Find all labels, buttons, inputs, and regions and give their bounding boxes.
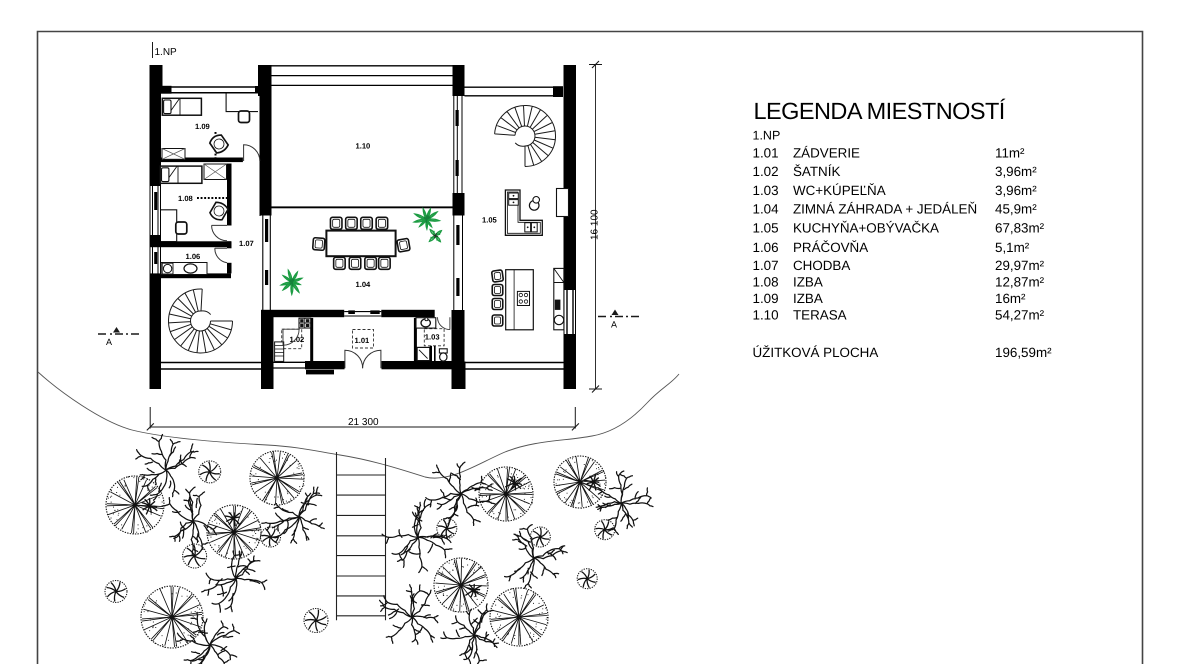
svg-text:ŠATNÍK: ŠATNÍK xyxy=(793,164,840,179)
svg-text:54,27m²: 54,27m² xyxy=(995,308,1045,323)
svg-text:12,87m²: 12,87m² xyxy=(995,275,1045,290)
svg-text:1.04: 1.04 xyxy=(753,202,780,217)
svg-text:1.03: 1.03 xyxy=(753,183,779,198)
svg-text:21 300: 21 300 xyxy=(348,417,379,428)
svg-text:1.05: 1.05 xyxy=(753,221,779,236)
svg-text:3,96m²: 3,96m² xyxy=(995,164,1037,179)
svg-text:ZIMNÁ ZÁHRADA + JEDÁLEŇ: ZIMNÁ ZÁHRADA + JEDÁLEŇ xyxy=(793,202,977,217)
svg-text:1.05: 1.05 xyxy=(482,216,498,225)
svg-text:1.08: 1.08 xyxy=(178,194,193,203)
svg-text:1.09: 1.09 xyxy=(195,122,210,131)
svg-text:67,83m²: 67,83m² xyxy=(995,221,1045,236)
svg-text:1.04: 1.04 xyxy=(356,280,372,289)
svg-text:TERASA: TERASA xyxy=(793,308,847,323)
svg-text:IZBA: IZBA xyxy=(793,275,823,290)
svg-text:KUCHYŇA+OBÝVAČKA: KUCHYŇA+OBÝVAČKA xyxy=(793,221,939,236)
svg-text:A: A xyxy=(611,320,617,330)
svg-text:1.08: 1.08 xyxy=(753,275,779,290)
svg-text:IZBA: IZBA xyxy=(793,291,823,306)
svg-text:1.01: 1.01 xyxy=(355,336,371,345)
svg-text:1.10: 1.10 xyxy=(753,308,779,323)
svg-text:1.03: 1.03 xyxy=(425,333,440,342)
svg-text:29,97m²: 29,97m² xyxy=(995,258,1045,273)
svg-text:1.07: 1.07 xyxy=(753,258,779,273)
svg-text:1.06: 1.06 xyxy=(186,252,201,261)
svg-text:16m²: 16m² xyxy=(995,291,1026,306)
svg-text:ZÁDVERIE: ZÁDVERIE xyxy=(793,146,860,161)
svg-text:1.06: 1.06 xyxy=(753,240,779,255)
svg-text:A: A xyxy=(106,337,112,347)
svg-text:ÚŽITKOVÁ PLOCHA: ÚŽITKOVÁ PLOCHA xyxy=(753,345,879,360)
svg-text:1.10: 1.10 xyxy=(356,142,371,151)
svg-text:LEGENDA MIESTNOSTÍ: LEGENDA MIESTNOSTÍ xyxy=(754,98,1006,124)
svg-text:196,59m²: 196,59m² xyxy=(995,345,1052,360)
svg-text:PRÁČOVŇA: PRÁČOVŇA xyxy=(793,240,868,255)
svg-text:3,96m²: 3,96m² xyxy=(995,183,1037,198)
svg-text:5,1m²: 5,1m² xyxy=(995,240,1030,255)
svg-text:16 100: 16 100 xyxy=(590,209,601,240)
svg-text:1.02: 1.02 xyxy=(753,164,779,179)
svg-text:1.07: 1.07 xyxy=(239,239,254,248)
svg-text:1.NP: 1.NP xyxy=(155,47,178,58)
svg-text:1.NP: 1.NP xyxy=(753,129,781,143)
svg-text:1.09: 1.09 xyxy=(753,291,779,306)
svg-text:45,9m²: 45,9m² xyxy=(995,202,1037,217)
svg-text:1.01: 1.01 xyxy=(753,146,779,161)
svg-text:CHODBA: CHODBA xyxy=(793,258,850,273)
svg-text:WC+KÚPEĽŇA: WC+KÚPEĽŇA xyxy=(793,183,886,198)
svg-text:11m²: 11m² xyxy=(995,146,1025,161)
